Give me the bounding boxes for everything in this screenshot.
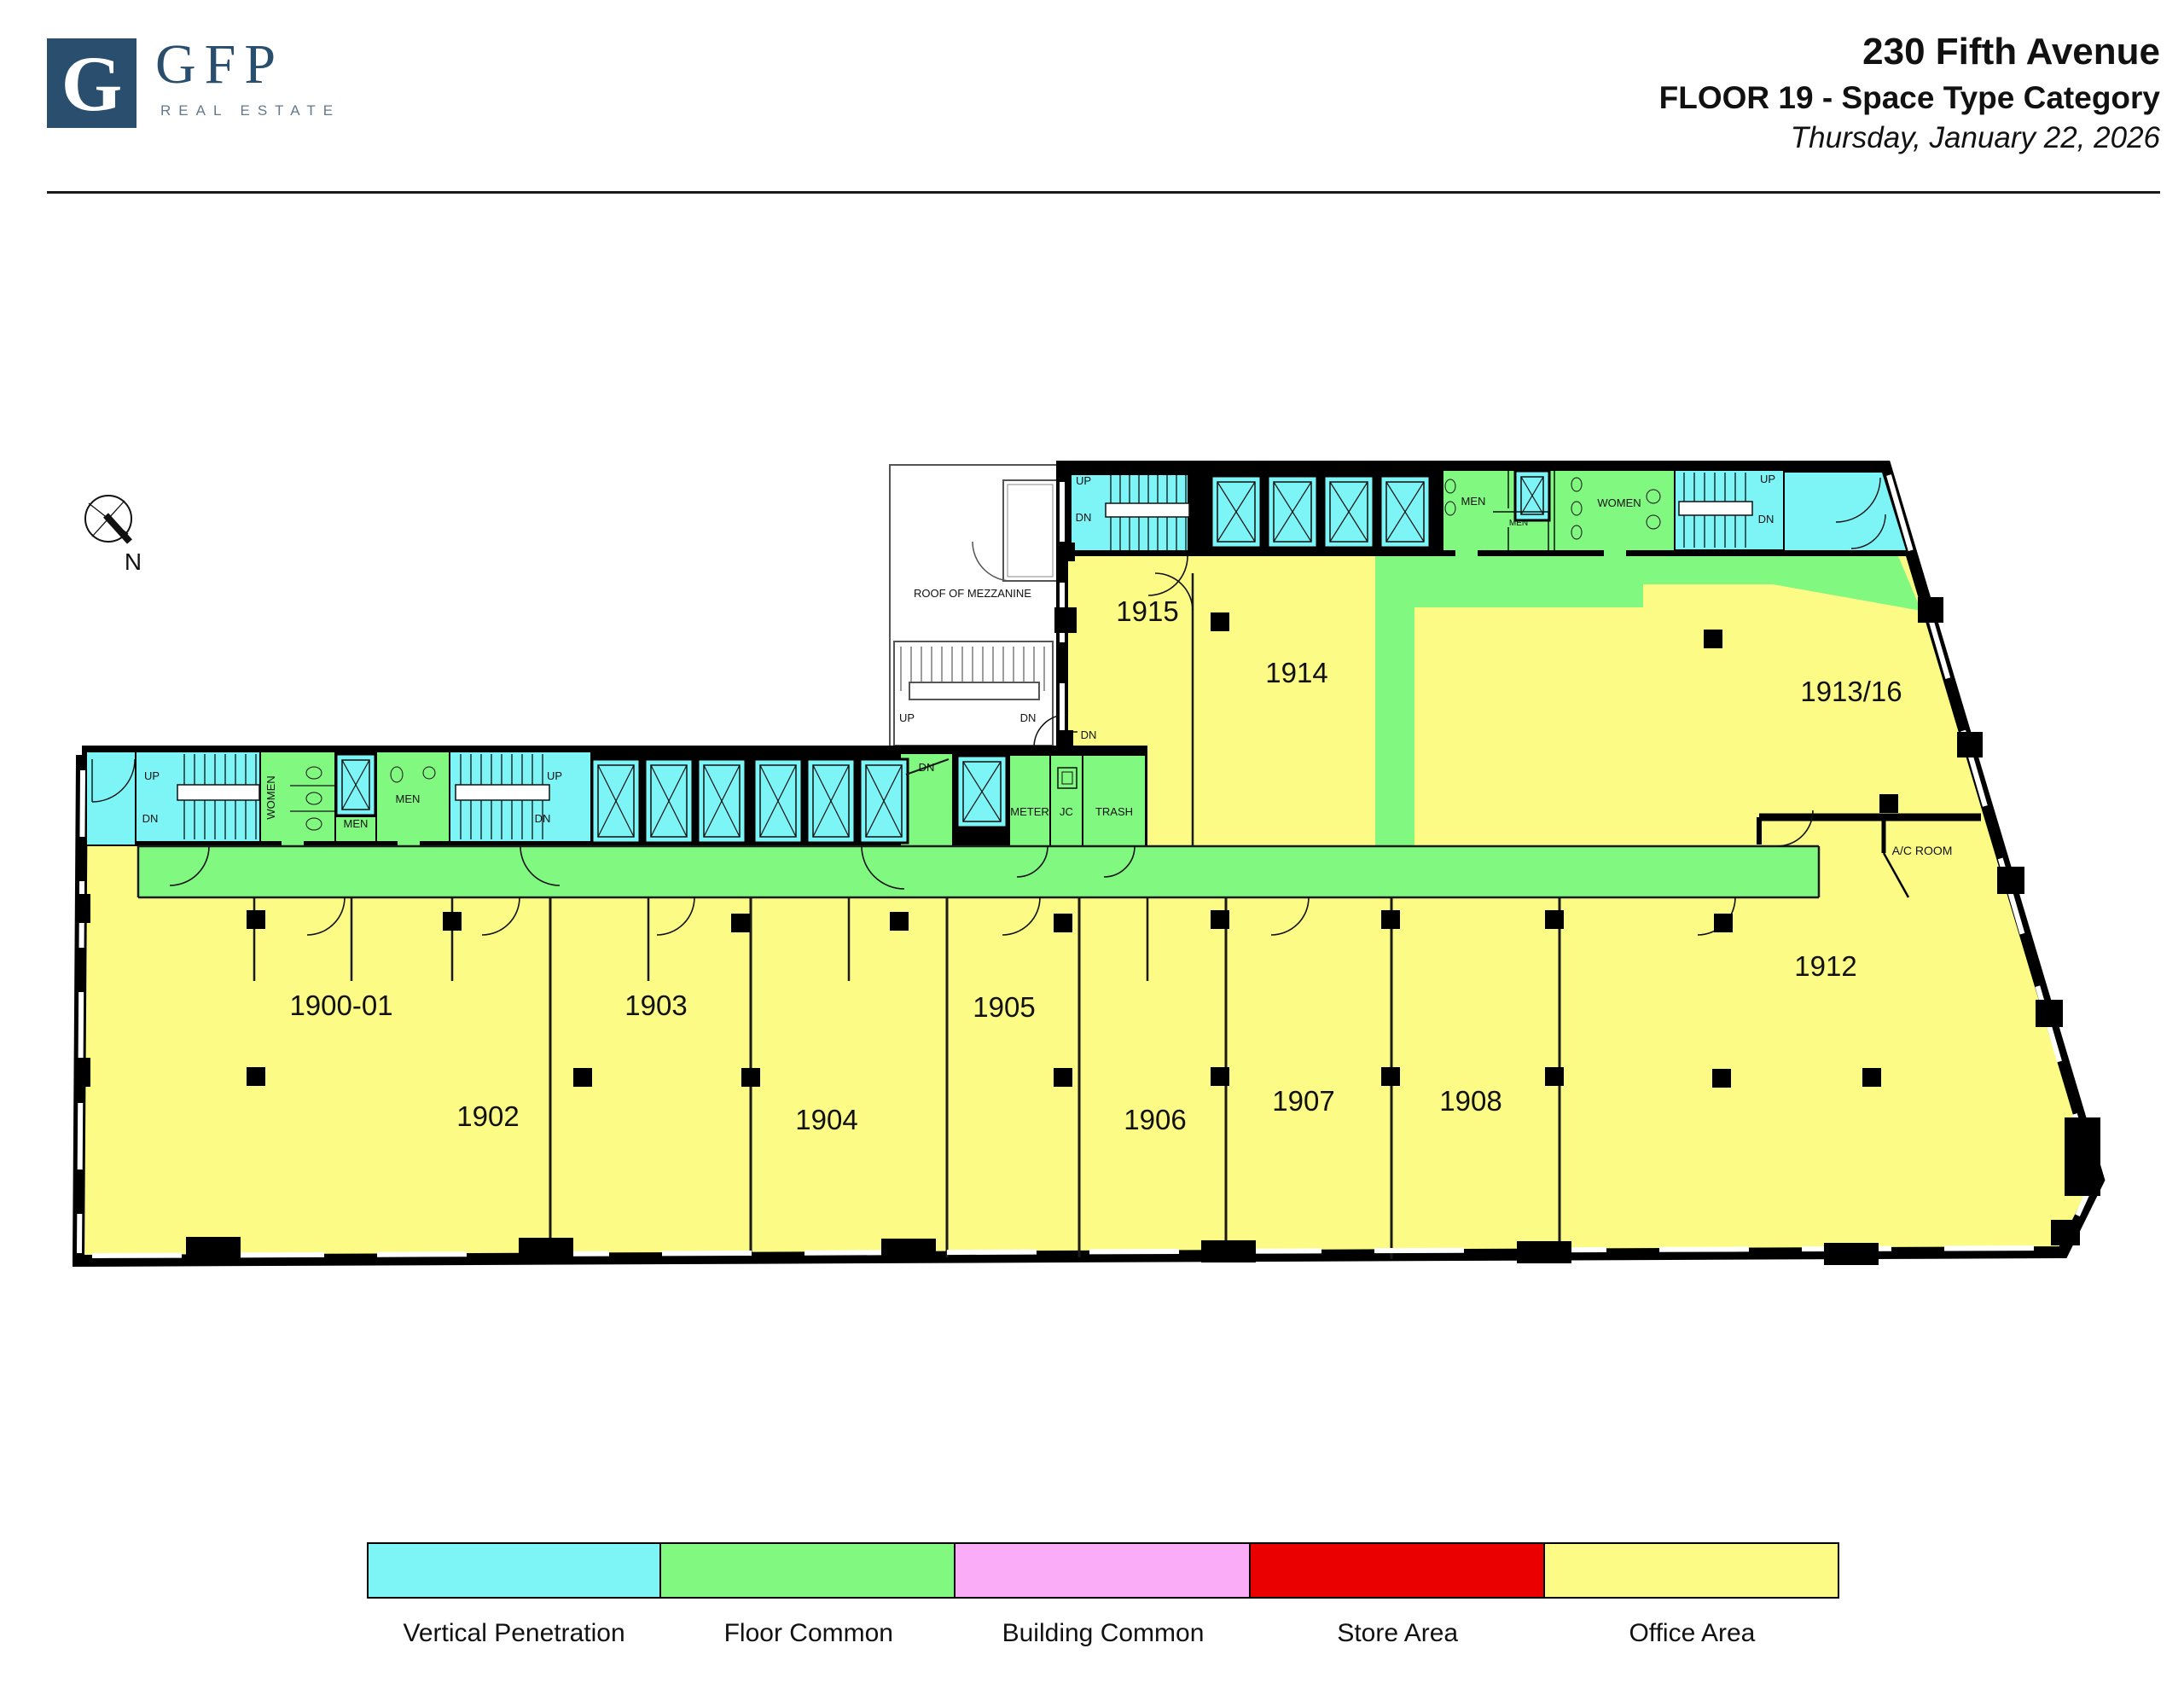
legend-label-floor-common: Floor Common: [661, 1619, 955, 1648]
header-divider: [47, 191, 2160, 194]
legend-item-building-common: Building Common: [955, 1542, 1250, 1648]
label-jc: JC: [1060, 805, 1073, 818]
label-men-upper: MEN: [1461, 495, 1486, 508]
label-men-upper-small: MEN: [1509, 519, 1528, 528]
room-label-1912: 1912: [1794, 950, 1856, 982]
page-subtitle: FLOOR 19 - Space Type Category: [1659, 80, 2160, 116]
legend-swatch-vertical-penetration: [367, 1542, 661, 1599]
room-label-1915: 1915: [1116, 595, 1178, 627]
label-men-lower: MEN: [344, 817, 369, 830]
label-up-mezzanine-stair: UP: [899, 711, 915, 724]
room-label-1906: 1906: [1124, 1104, 1186, 1135]
page-title: 230 Fifth Avenue: [1659, 31, 2160, 73]
compass: N: [85, 496, 142, 575]
legend-swatch-store-area: [1249, 1542, 1545, 1599]
label-roof-of-mezzanine: ROOF OF MEZZANINE: [914, 587, 1031, 600]
legend-label-store-area: Store Area: [1251, 1619, 1545, 1648]
legend-item-vertical-penetration: Vertical Penetration: [367, 1542, 661, 1648]
label-meter: METER: [1010, 805, 1049, 818]
room-label-1908: 1908: [1439, 1085, 1501, 1117]
column: [890, 912, 909, 931]
legend: Vertical Penetration Floor Common Buildi…: [367, 1542, 1839, 1648]
roof-of-mezzanine: ROOF OF MEZZANINE UP DN: [890, 465, 1057, 747]
label-dn-stair-upper-right: DN: [1758, 513, 1774, 525]
label-ac-room: A/C ROOM: [1892, 844, 1953, 857]
column: [1211, 612, 1229, 631]
label-dn-stair-lower-left: DN: [142, 812, 159, 825]
column: [1381, 910, 1400, 929]
column: [1211, 1067, 1229, 1086]
room-label-1907: 1907: [1272, 1085, 1334, 1117]
label-up-stair-lower-mid: UP: [547, 769, 562, 782]
column: [247, 1067, 265, 1086]
column: [1862, 1068, 1881, 1087]
column: [573, 1068, 592, 1087]
compass-north-label: N: [125, 548, 142, 575]
room-label-1904: 1904: [795, 1104, 857, 1135]
legend-swatch-office-area: [1543, 1542, 1839, 1599]
legend-label-vertical-penetration: Vertical Penetration: [367, 1619, 661, 1648]
label-men-lower-2: MEN: [396, 792, 421, 805]
legend-swatch-building-common: [954, 1542, 1250, 1599]
column: [1712, 1069, 1731, 1088]
label-up-stair-upper-right: UP: [1760, 473, 1775, 485]
room-label-1903: 1903: [624, 990, 687, 1021]
legend-swatch-floor-common: [659, 1542, 955, 1599]
header-titles: 230 Fifth Avenue FLOOR 19 - Space Type C…: [1659, 31, 2160, 155]
label-up-stair-lower-left: UP: [144, 769, 160, 782]
label-trash: TRASH: [1095, 805, 1133, 818]
page: N ROOF OF MEZZANINE UP DN: [0, 0, 2184, 1689]
page-date: Thursday, January 22, 2026: [1659, 121, 2160, 155]
column: [1545, 1067, 1564, 1086]
room-label-1905: 1905: [973, 991, 1035, 1023]
column: [1054, 914, 1072, 932]
room-label-1913-16: 1913/16: [1800, 676, 1902, 707]
label-women-upper: WOMEN: [1597, 496, 1641, 509]
legend-item-store-area: Store Area: [1251, 1542, 1545, 1648]
legend-item-floor-common: Floor Common: [661, 1542, 955, 1648]
column: [1211, 910, 1229, 929]
label-up-stair-upper-left: UP: [1076, 474, 1091, 487]
column: [1714, 914, 1733, 932]
column: [731, 914, 750, 932]
legend-label-building-common: Building Common: [955, 1619, 1250, 1648]
column: [1381, 1067, 1400, 1086]
label-women-lower: WOMEN: [264, 775, 277, 819]
brand-name: GFP: [155, 32, 284, 97]
label-dn-mezzanine-stair: DN: [1020, 711, 1037, 724]
label-dn-door-1915: DN: [1081, 728, 1097, 741]
gfp-logo: G: [47, 38, 136, 128]
legend-label-office-area: Office Area: [1545, 1619, 1839, 1648]
label-dn-vestibule: DN: [919, 761, 935, 774]
column: [1545, 910, 1564, 929]
room-label-1900-01: 1900-01: [289, 990, 392, 1021]
room-label-1914: 1914: [1265, 657, 1327, 688]
column: [1879, 794, 1898, 813]
brand-tagline: REAL ESTATE: [160, 102, 340, 119]
label-dn-stair-upper-left: DN: [1076, 511, 1092, 524]
label-dn-stair-lower-mid: DN: [535, 812, 551, 825]
gfp-logo-mark: G: [61, 44, 123, 123]
room-label-1902: 1902: [456, 1100, 519, 1132]
legend-item-office-area: Office Area: [1545, 1542, 1839, 1648]
floor-plan: N ROOF OF MEZZANINE UP DN: [0, 0, 2184, 1689]
column: [1054, 1068, 1072, 1087]
column: [443, 912, 462, 931]
column: [247, 910, 265, 929]
column: [741, 1068, 760, 1087]
column: [1704, 630, 1722, 648]
